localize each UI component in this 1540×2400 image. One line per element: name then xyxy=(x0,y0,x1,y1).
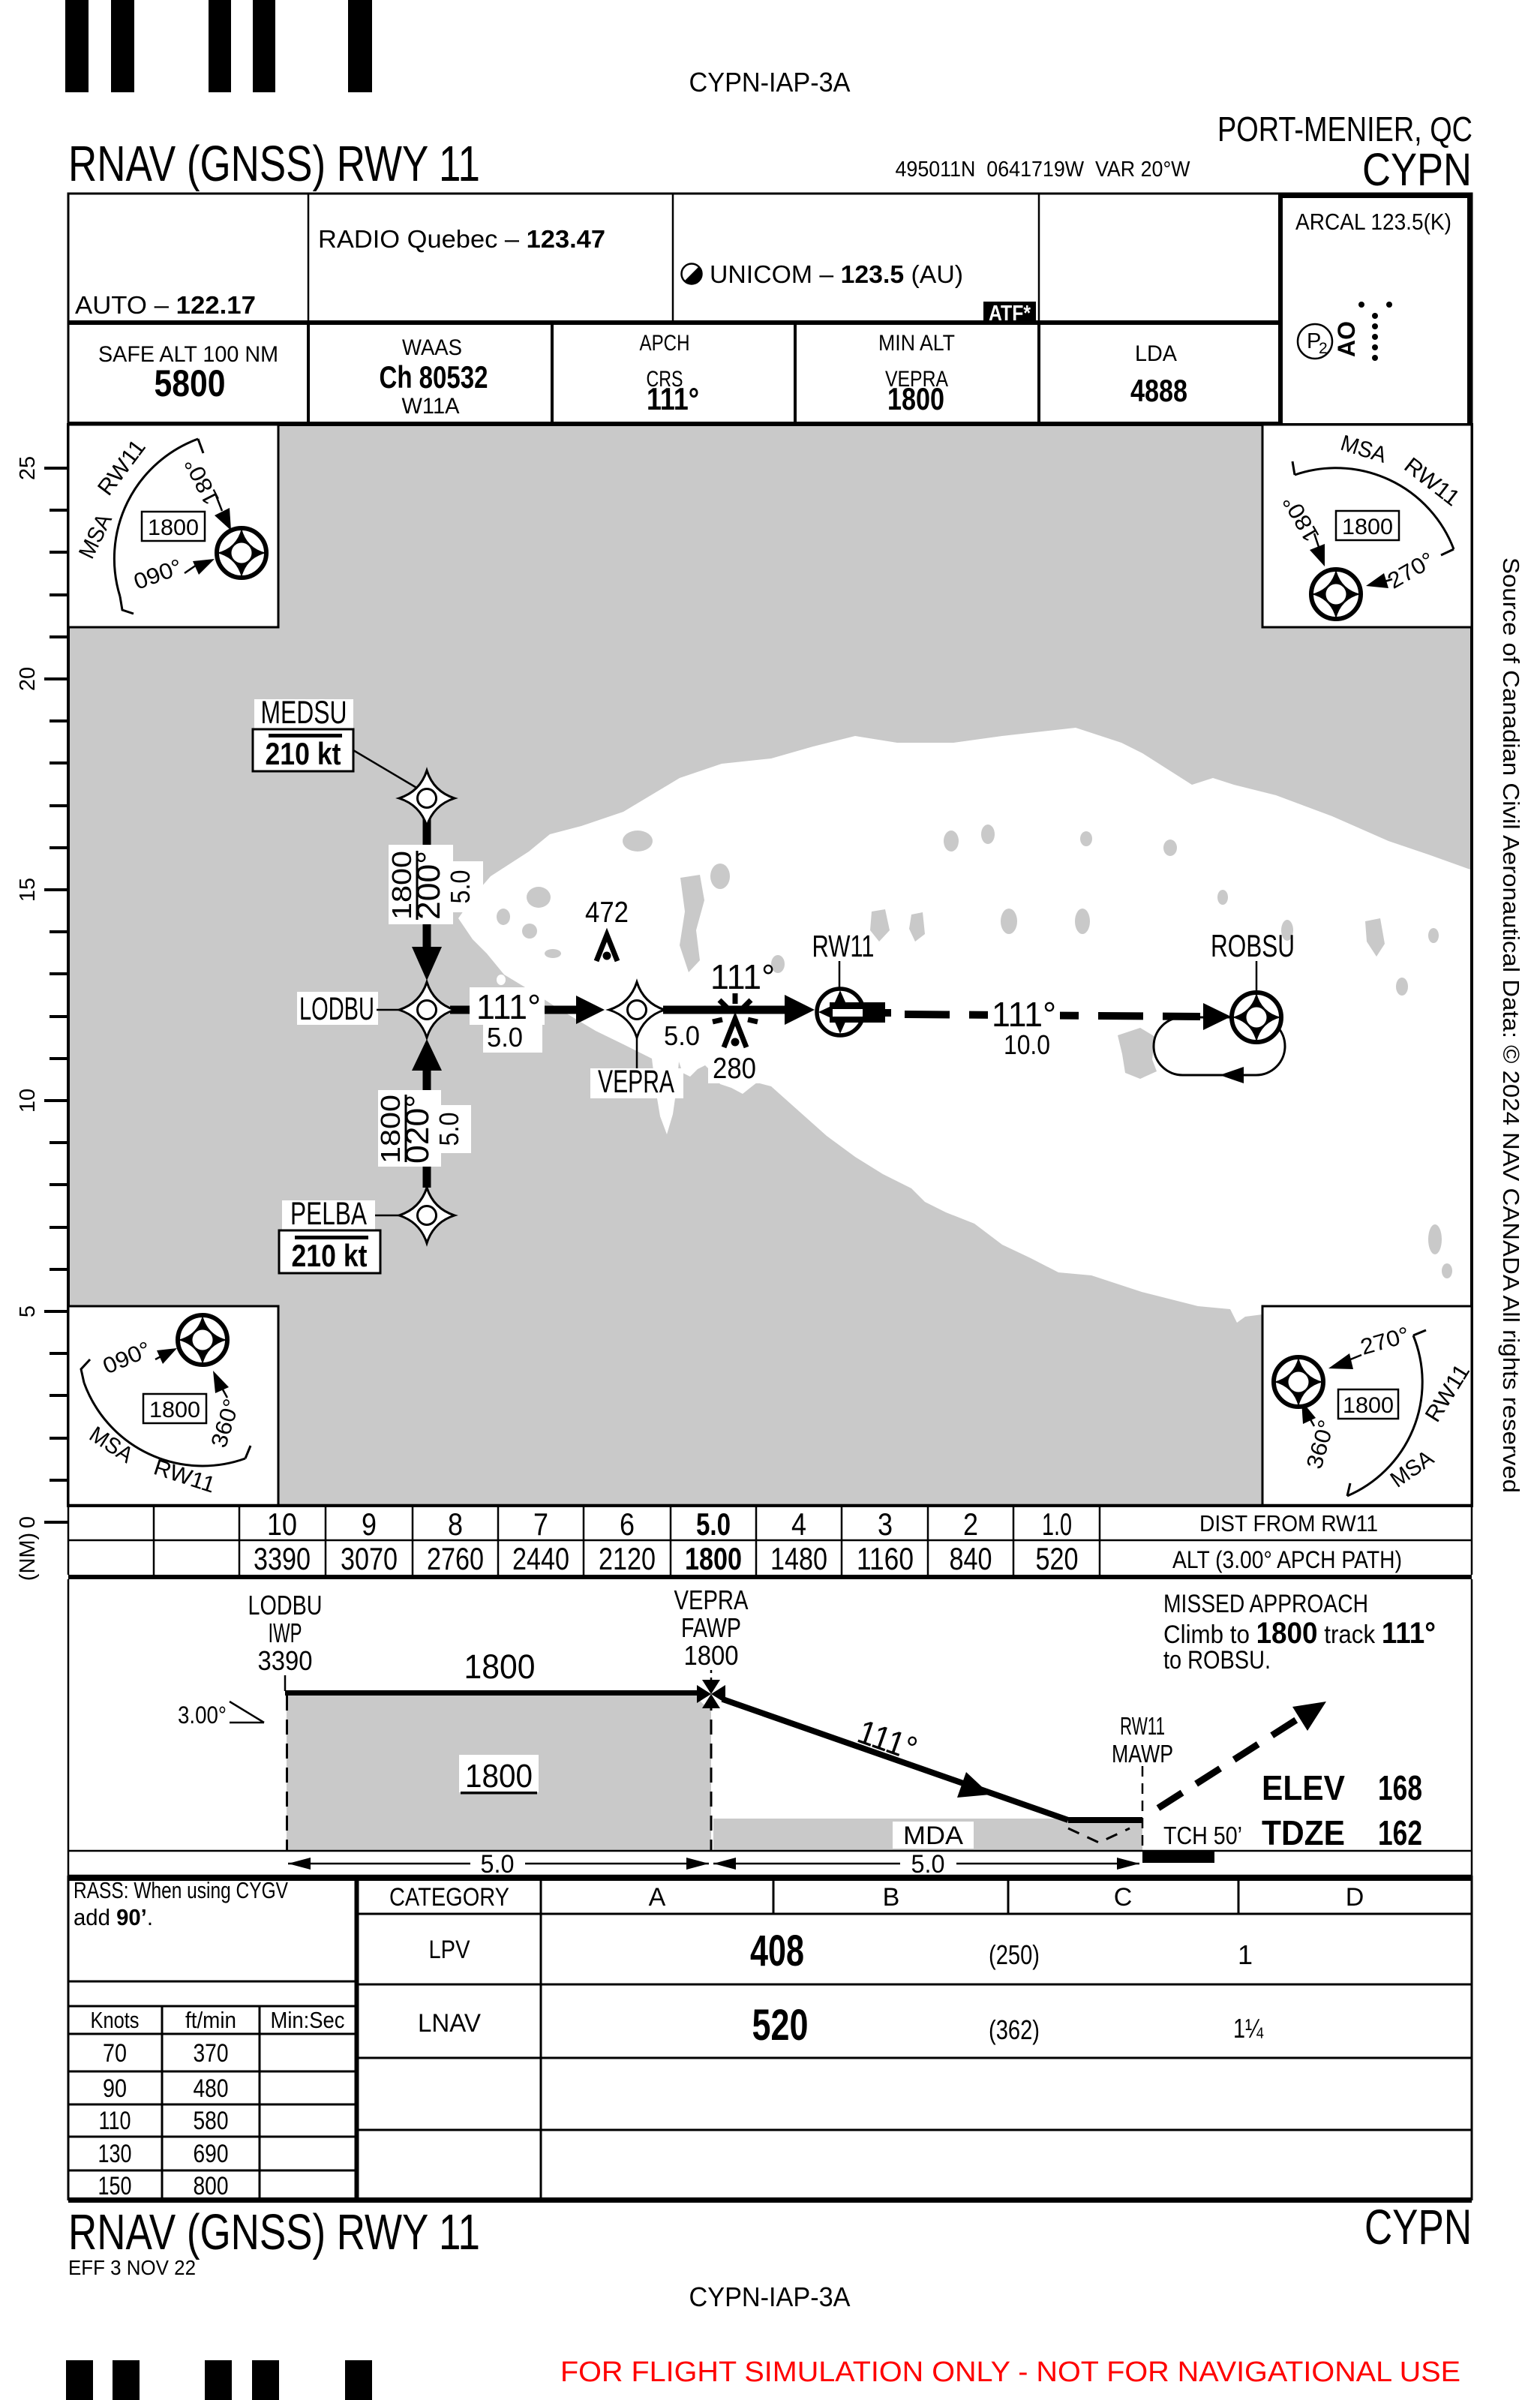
svg-text:1800: 1800 xyxy=(684,1640,739,1671)
svg-text:CATEGORY: CATEGORY xyxy=(389,1883,509,1912)
svg-text:111°: 111° xyxy=(647,381,699,416)
svg-text:D: D xyxy=(1346,1883,1364,1912)
svg-text:200°: 200° xyxy=(410,851,447,920)
svg-text:5.0: 5.0 xyxy=(487,1022,523,1053)
svg-text:5.0: 5.0 xyxy=(664,1020,700,1051)
svg-text:MEDSU: MEDSU xyxy=(261,695,347,731)
svg-text:2440: 2440 xyxy=(512,1541,569,1576)
svg-text:495011N 0641719W VAR 20°W: 495011N 0641719W VAR 20°W xyxy=(896,158,1191,182)
svg-text:2: 2 xyxy=(1319,340,1328,357)
svg-text:CYPN-IAP-3A: CYPN-IAP-3A xyxy=(689,2281,851,2312)
svg-text:RW11: RW11 xyxy=(1120,1712,1165,1740)
svg-text:RW11: RW11 xyxy=(812,929,875,963)
svg-text:5800: 5800 xyxy=(155,362,226,404)
svg-text:1800: 1800 xyxy=(464,1648,536,1686)
svg-text:AO: AO xyxy=(1333,321,1360,357)
svg-text:(250): (250) xyxy=(989,1939,1040,1970)
svg-text:7: 7 xyxy=(533,1506,548,1542)
svg-text:ALT (3.00° APCH PATH): ALT (3.00° APCH PATH) xyxy=(1172,1546,1402,1573)
svg-text:VEPRA: VEPRA xyxy=(674,1584,749,1615)
svg-text:ATF*: ATF* xyxy=(989,302,1031,326)
svg-text:3.00°: 3.00° xyxy=(178,1702,227,1729)
svg-text:LODBU: LODBU xyxy=(248,1590,323,1621)
svg-text:2120: 2120 xyxy=(599,1541,656,1576)
svg-text:RNAV (GNSS) RWY 11: RNAV (GNSS) RWY 11 xyxy=(68,136,480,192)
svg-text:5: 5 xyxy=(16,1305,40,1317)
svg-text:TCH 50’: TCH 50’ xyxy=(1163,1822,1242,1849)
svg-text:3390: 3390 xyxy=(254,1541,311,1576)
svg-text:FOR FLIGHT SIMULATION ONLY - N: FOR FLIGHT SIMULATION ONLY - NOT FOR NAV… xyxy=(560,2356,1460,2388)
svg-text:10: 10 xyxy=(16,1089,40,1113)
svg-text:WAAS: WAAS xyxy=(402,335,462,360)
svg-text:70: 70 xyxy=(103,2039,127,2068)
svg-text:020°: 020° xyxy=(399,1095,436,1164)
svg-text:FAWP: FAWP xyxy=(681,1612,741,1643)
svg-text:UNICOM – 123.5 (AU): UNICOM – 123.5 (AU) xyxy=(710,260,963,288)
svg-text:2: 2 xyxy=(963,1506,978,1542)
svg-text:1800: 1800 xyxy=(465,1758,533,1795)
svg-text:840: 840 xyxy=(950,1541,992,1576)
svg-text:5.0: 5.0 xyxy=(445,870,476,904)
svg-text:add 90’.: add 90’. xyxy=(74,1904,153,1930)
svg-text:5.0: 5.0 xyxy=(696,1506,731,1542)
svg-text:1480: 1480 xyxy=(770,1541,827,1576)
svg-text:110: 110 xyxy=(99,2107,131,2135)
svg-text:ARCAL 123.5(K): ARCAL 123.5(K) xyxy=(1295,209,1451,235)
svg-text:0: 0 xyxy=(16,1516,40,1528)
svg-text:690: 690 xyxy=(194,2140,229,2168)
svg-text:RNAV (GNSS) RWY 11: RNAV (GNSS) RWY 11 xyxy=(68,2204,480,2260)
svg-text:1800: 1800 xyxy=(685,1541,742,1576)
svg-text:800: 800 xyxy=(194,2172,229,2200)
svg-text:TDZE: TDZE xyxy=(1262,1813,1345,1852)
svg-text:1800: 1800 xyxy=(149,1398,200,1422)
svg-text:162: 162 xyxy=(1378,1813,1422,1852)
svg-text:DIST FROM RW11: DIST FROM RW11 xyxy=(1199,1510,1378,1536)
svg-text:MISSED APPROACH: MISSED APPROACH xyxy=(1163,1590,1368,1618)
svg-text:1800: 1800 xyxy=(1342,515,1393,539)
svg-text:Ch 80532: Ch 80532 xyxy=(380,359,488,395)
svg-text:472: 472 xyxy=(585,897,629,929)
svg-text:B: B xyxy=(883,1883,900,1912)
svg-text:20: 20 xyxy=(16,667,40,691)
svg-text:to ROBSU.: to ROBSU. xyxy=(1163,1646,1271,1675)
svg-text:1¼: 1¼ xyxy=(1233,2013,1264,2044)
svg-text:CYPN-IAP-3A: CYPN-IAP-3A xyxy=(689,67,851,98)
svg-text:150: 150 xyxy=(98,2172,132,2200)
svg-text:520: 520 xyxy=(1036,1541,1079,1576)
svg-text:6: 6 xyxy=(620,1506,635,1542)
svg-text:10: 10 xyxy=(267,1506,297,1542)
svg-text:5.0: 5.0 xyxy=(434,1113,464,1146)
svg-text:15: 15 xyxy=(16,878,40,902)
svg-text:5.0: 5.0 xyxy=(481,1850,515,1879)
svg-text:Climb to 1800 track 111°: Climb to 1800 track 111° xyxy=(1163,1617,1436,1650)
svg-text:MIN ALT: MIN ALT xyxy=(878,331,955,356)
svg-text:W11A: W11A xyxy=(402,394,460,419)
svg-text:1800: 1800 xyxy=(887,381,944,416)
svg-text:(362): (362) xyxy=(989,2014,1040,2045)
svg-text:210 kt: 210 kt xyxy=(292,1238,368,1273)
svg-text:3070: 3070 xyxy=(341,1541,398,1576)
svg-text:A: A xyxy=(649,1883,666,1912)
svg-text:LDA: LDA xyxy=(1135,341,1177,366)
svg-text:MDA: MDA xyxy=(903,1822,963,1850)
svg-text:RADIO Quebec – 123.47: RADIO Quebec – 123.47 xyxy=(318,225,605,253)
svg-text:VEPRA: VEPRA xyxy=(598,1064,674,1100)
svg-text:LNAV: LNAV xyxy=(418,2009,481,2038)
svg-text:2760: 2760 xyxy=(427,1541,484,1576)
svg-text:10.0: 10.0 xyxy=(1004,1029,1050,1060)
svg-text:Source of Canadian Civil Aeron: Source of Canadian Civil Aeronautical Da… xyxy=(1498,557,1524,1493)
svg-text:1: 1 xyxy=(1238,1939,1253,1970)
svg-text:408: 408 xyxy=(750,1927,804,1975)
svg-text:C: C xyxy=(1114,1883,1133,1912)
svg-text:280: 280 xyxy=(713,1053,756,1085)
svg-text:ft/min: ft/min xyxy=(185,2007,236,2033)
svg-text:25: 25 xyxy=(16,456,40,480)
svg-text:Min:Sec: Min:Sec xyxy=(271,2007,345,2033)
svg-text:130: 130 xyxy=(98,2140,132,2168)
svg-text:580: 580 xyxy=(194,2107,229,2135)
svg-text:ELEV: ELEV xyxy=(1262,1768,1345,1807)
svg-text:IWP: IWP xyxy=(269,1618,302,1648)
svg-text:1160: 1160 xyxy=(857,1541,914,1576)
svg-text:Knots: Knots xyxy=(91,2007,140,2033)
svg-text:8: 8 xyxy=(448,1506,463,1542)
svg-text:(NM): (NM) xyxy=(16,1533,40,1581)
svg-text:111°: 111° xyxy=(992,995,1056,1034)
svg-text:111°: 111° xyxy=(710,957,775,996)
svg-text:3390: 3390 xyxy=(258,1645,313,1676)
svg-text:MAWP: MAWP xyxy=(1112,1740,1173,1768)
svg-text:4888: 4888 xyxy=(1130,373,1187,408)
svg-text:4: 4 xyxy=(791,1506,806,1542)
svg-text:ROBSU: ROBSU xyxy=(1211,928,1295,963)
svg-text:AUTO – 122.17: AUTO – 122.17 xyxy=(75,291,256,319)
svg-text:PORT-MENIER, QC: PORT-MENIER, QC xyxy=(1217,110,1472,149)
svg-text:1800: 1800 xyxy=(1343,1393,1394,1418)
svg-text:370: 370 xyxy=(194,2039,229,2068)
svg-text:168: 168 xyxy=(1378,1768,1422,1807)
svg-text:LODBU: LODBU xyxy=(299,991,374,1027)
svg-text:520: 520 xyxy=(752,2001,809,2050)
svg-text:1.0: 1.0 xyxy=(1042,1506,1072,1542)
svg-text:210 kt: 210 kt xyxy=(266,736,341,771)
svg-text:1800: 1800 xyxy=(148,515,199,540)
svg-text:3: 3 xyxy=(878,1506,893,1542)
svg-text:CYPN: CYPN xyxy=(1364,2199,1472,2254)
svg-text:480: 480 xyxy=(194,2074,229,2103)
svg-text:EFF 3 NOV 22: EFF 3 NOV 22 xyxy=(68,2256,196,2279)
svg-text:9: 9 xyxy=(362,1506,377,1542)
svg-text:APCH: APCH xyxy=(640,331,690,356)
svg-text:CYPN: CYPN xyxy=(1362,144,1472,195)
svg-text:RASS: When using CYGV: RASS: When using CYGV xyxy=(74,1877,288,1903)
svg-text:PELBA: PELBA xyxy=(290,1196,367,1232)
svg-text:90: 90 xyxy=(103,2074,127,2103)
svg-text:5.0: 5.0 xyxy=(911,1850,945,1879)
svg-text:111°: 111° xyxy=(476,987,541,1026)
svg-text:LPV: LPV xyxy=(429,1936,470,1964)
